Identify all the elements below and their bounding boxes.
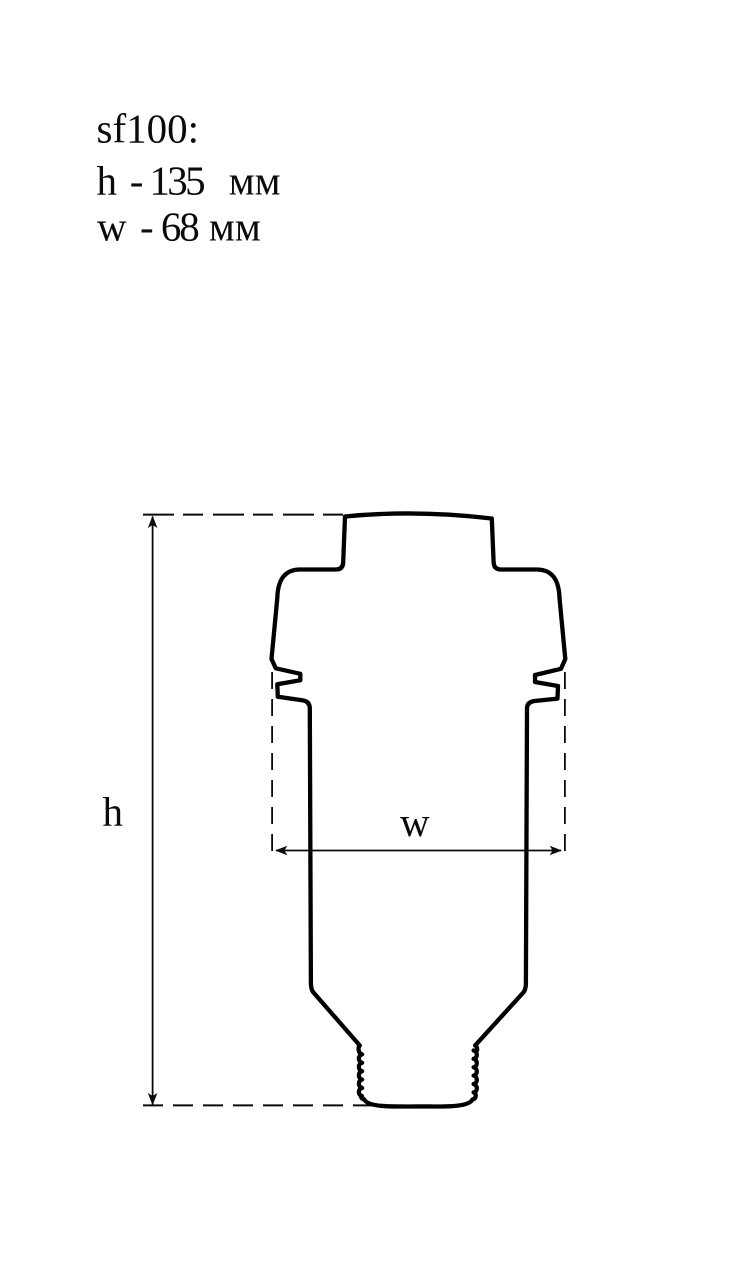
svg-text:-: - bbox=[140, 203, 154, 249]
svg-text:w: w bbox=[400, 799, 430, 845]
svg-text:мм: мм bbox=[229, 157, 281, 203]
svg-text:135: 135 bbox=[150, 157, 205, 203]
svg-text:h: h bbox=[97, 157, 118, 203]
svg-text:h: h bbox=[103, 789, 124, 835]
svg-text:-: - bbox=[130, 157, 144, 203]
svg-text:68: 68 bbox=[161, 203, 198, 249]
svg-text:мм: мм bbox=[209, 203, 261, 249]
svg-text:w: w bbox=[97, 203, 127, 249]
svg-text:sf100:: sf100: bbox=[97, 106, 200, 152]
